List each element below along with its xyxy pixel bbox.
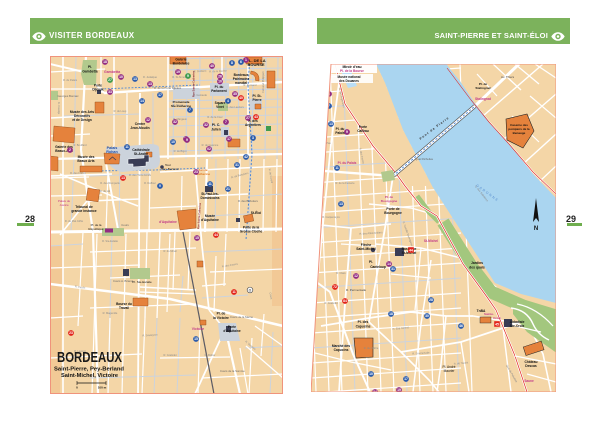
svg-text:Pl. Ste-Eulalie: Pl. Ste-Eulalie: [132, 280, 152, 284]
svg-text:Pl. C.: Pl. C.: [212, 123, 220, 127]
svg-text:26: 26: [218, 75, 222, 79]
svg-text:Julien: Julien: [211, 127, 221, 131]
svg-text:Ste-Croix: Ste-Croix: [510, 324, 525, 328]
svg-text:Pl. de: Pl. de: [217, 312, 226, 316]
svg-text:46: 46: [459, 324, 463, 328]
svg-text:Fernand Philippart: Fernand Philippart: [261, 71, 265, 92]
svg-text:R. des Trois-Conils: R. des Trois-Conils: [129, 173, 152, 177]
svg-text:BOURSE: BOURSE: [247, 62, 264, 67]
svg-text:Capucins: Capucins: [356, 324, 371, 328]
svg-text:17: 17: [227, 137, 231, 141]
svg-text:Bordelaise: Bordelaise: [173, 62, 190, 66]
svg-text:14: 14: [387, 262, 391, 266]
svg-text:Saint-Pierre, Pey-Berland: Saint-Pierre, Pey-Berland: [54, 367, 124, 373]
svg-text:14: 14: [140, 99, 144, 103]
svg-text:18: 18: [103, 60, 107, 64]
svg-text:2: 2: [69, 148, 71, 152]
svg-text:Pl. des: Pl. des: [358, 320, 369, 324]
svg-text:Descas: Descas: [525, 364, 537, 368]
svg-text:Gambetta: Gambetta: [82, 69, 97, 73]
svg-text:4: 4: [227, 99, 229, 103]
svg-text:Canteloup: Canteloup: [370, 265, 386, 269]
svg-text:St-Michel: St-Michel: [424, 239, 438, 243]
svg-text:19: 19: [176, 70, 180, 74]
svg-text:des quais: des quais: [469, 266, 485, 270]
svg-text:R. Ravez: R. Ravez: [173, 103, 184, 107]
svg-text:R. St-Rémi: R. St-Rémi: [194, 69, 207, 73]
svg-text:Bourgogne: Bourgogne: [384, 211, 402, 215]
svg-text:R. de Bigot: R. de Bigot: [174, 149, 187, 153]
svg-text:R. du Mirail: R. du Mirail: [163, 249, 177, 253]
svg-text:Jardins: Jardins: [471, 261, 483, 265]
svg-text:Stalingrad: Stalingrad: [475, 86, 490, 90]
svg-text:grande instance: grande instance: [71, 209, 96, 213]
svg-text:O: O: [249, 288, 252, 292]
svg-text:8: 8: [231, 61, 233, 65]
svg-text:18: 18: [389, 312, 393, 316]
svg-text:St-Éloi: St-Éloi: [251, 210, 262, 215]
svg-text:Croix: Croix: [493, 316, 501, 320]
svg-text:N: N: [534, 226, 538, 232]
svg-text:10: 10: [218, 80, 222, 84]
svg-text:44: 44: [409, 248, 413, 252]
svg-text:32: 32: [173, 120, 177, 124]
svg-text:15: 15: [194, 337, 198, 341]
svg-text:Pl. de la Bourse: Pl. de la Bourse: [340, 69, 364, 73]
svg-text:19: 19: [397, 388, 401, 392]
svg-text:9: 9: [187, 74, 189, 78]
svg-text:Cours de la Somme: Cours de la Somme: [220, 369, 245, 373]
svg-text:12: 12: [146, 118, 150, 122]
svg-text:17: 17: [158, 93, 162, 97]
svg-text:30: 30: [425, 314, 429, 318]
svg-text:Victoire: Victoire: [192, 327, 204, 331]
svg-text:35: 35: [233, 92, 237, 96]
svg-text:Argentiers: Argentiers: [245, 123, 261, 127]
svg-text:7: 7: [189, 108, 191, 112]
svg-text:27: 27: [108, 78, 112, 82]
svg-text:84: 84: [343, 299, 347, 303]
svg-text:7: 7: [225, 120, 227, 124]
svg-text:33: 33: [108, 90, 112, 94]
svg-text:Saint-Michel, Victoire: Saint-Michel, Victoire: [61, 373, 119, 379]
svg-text:42: 42: [244, 155, 248, 159]
svg-text:Av. Thiers: Av. Thiers: [501, 75, 515, 79]
svg-text:R. du Palais: R. du Palais: [63, 78, 78, 82]
svg-text:Grosse Cloche: Grosse Cloche: [240, 230, 263, 234]
svg-text:R. Carpenteyre: R. Carpenteyre: [322, 215, 340, 219]
svg-text:40: 40: [210, 64, 214, 68]
svg-text:Cours: Cours: [121, 223, 129, 227]
svg-text:Capucins: Capucins: [334, 348, 349, 352]
svg-text:13: 13: [148, 82, 152, 86]
svg-text:10: 10: [171, 140, 175, 144]
svg-text:13: 13: [339, 202, 343, 206]
svg-text:Rohan: Rohan: [106, 150, 118, 154]
svg-text:R. Kléber: R. Kléber: [205, 353, 216, 357]
svg-text:R. Ste-Eulalie: R. Ste-Eulalie: [102, 239, 118, 243]
svg-text:1: 1: [245, 58, 247, 62]
svg-text:d'Aquitaine: d'Aquitaine: [201, 218, 219, 222]
svg-text:R. Permentade: R. Permentade: [346, 288, 367, 292]
svg-text:R. du Hâ: R. du Hâ: [100, 189, 111, 193]
svg-text:R. de la Cour: R. de la Cour: [207, 115, 222, 119]
svg-text:R. Duffour: R. Duffour: [144, 181, 156, 185]
svg-text:Pl.: Pl.: [369, 260, 373, 264]
svg-text:Dominicains: Dominicains: [201, 196, 220, 200]
svg-text:11: 11: [208, 182, 212, 186]
svg-text:10: 10: [369, 372, 373, 376]
svg-text:la Victoire: la Victoire: [213, 316, 229, 320]
svg-text:R. du Pas: R. du Pas: [319, 141, 331, 145]
svg-text:Cours de la Marne: Cours de la Marne: [230, 315, 253, 319]
svg-text:28: 28: [429, 298, 433, 302]
svg-text:St-André: St-André: [134, 152, 148, 156]
svg-text:des Douanes: des Douanes: [339, 79, 359, 83]
svg-text:12: 12: [354, 274, 358, 278]
svg-text:Beaux Arts: Beaux Arts: [77, 159, 94, 163]
svg-text:13: 13: [133, 77, 137, 81]
svg-text:Pierre: Pierre: [252, 98, 261, 102]
svg-text:15: 15: [195, 236, 199, 240]
svg-text:R. Gratiolet: R. Gratiolet: [324, 301, 337, 305]
svg-text:R. Magendie: R. Magendie: [103, 311, 118, 315]
svg-text:d'Aquitaine: d'Aquitaine: [159, 220, 177, 224]
svg-text:R. des Remparts: R. des Remparts: [100, 181, 120, 185]
svg-text:Saune: Saune: [524, 379, 534, 383]
svg-text:Pl.: Pl.: [88, 65, 92, 69]
svg-text:Cailhau: Cailhau: [357, 129, 369, 133]
svg-text:R. des Lauriers: R. des Lauriers: [226, 105, 244, 109]
svg-text:44: 44: [214, 233, 218, 237]
svg-text:31: 31: [235, 163, 239, 167]
svg-text:Saint-Michel: Saint-Michel: [356, 247, 376, 251]
svg-text:72: 72: [333, 285, 337, 289]
svg-text:13: 13: [121, 176, 125, 180]
svg-text:Miroir d'eau: Miroir d'eau: [342, 65, 361, 69]
svg-text:R. de la Fusterie: R. de la Fusterie: [335, 181, 355, 185]
svg-text:R. des Bahutiers: R. des Bahutiers: [238, 199, 259, 203]
svg-text:d'Aquitaine: d'Aquitaine: [223, 329, 240, 333]
svg-text:R. du Cloître: R. du Cloître: [364, 346, 379, 350]
svg-text:Benauge: Benauge: [513, 131, 526, 135]
svg-text:23: 23: [194, 170, 198, 174]
svg-text:Pey Berland: Pey Berland: [162, 167, 179, 171]
svg-text:Vinet: Vinet: [216, 105, 225, 109]
svg-text:Dijeaux: Dijeaux: [92, 88, 104, 92]
svg-text:Justice: Justice: [59, 203, 69, 207]
svg-text:Gambetta: Gambetta: [104, 70, 120, 74]
svg-text:27: 27: [246, 116, 250, 120]
svg-text:République: République: [88, 227, 104, 231]
svg-text:R. Bouffard: R. Bouffard: [73, 143, 87, 147]
svg-text:Quai Richelieu: Quai Richelieu: [415, 157, 434, 161]
svg-text:32: 32: [204, 123, 208, 127]
svg-text:9: 9: [346, 130, 348, 134]
svg-text:R. Gratiolet: R. Gratiolet: [163, 353, 176, 357]
svg-text:45: 45: [495, 322, 499, 326]
svg-text:et de Design: et de Design: [72, 118, 92, 122]
svg-text:R. du Mal Joffre: R. du Mal Joffre: [65, 219, 84, 223]
svg-text:Maurier: Maurier: [444, 369, 456, 373]
svg-text:11: 11: [125, 145, 129, 149]
svg-text:9: 9: [186, 138, 188, 142]
svg-text:10: 10: [119, 75, 123, 79]
svg-text:Bourgogne: Bourgogne: [381, 199, 398, 203]
svg-text:Jean-Moulin: Jean-Moulin: [130, 126, 149, 130]
svg-text:Stalingrad: Stalingrad: [475, 97, 491, 101]
svg-text:43: 43: [254, 115, 258, 119]
svg-text:02: 02: [207, 147, 211, 151]
svg-text:R. de la Porte Dijeaux: R. de la Porte Dijeaux: [154, 86, 182, 90]
svg-text:R. Clare: R. Clare: [336, 271, 346, 275]
svg-text:100 m: 100 m: [98, 386, 107, 390]
svg-text:Cours A. Briand: Cours A. Briand: [113, 279, 133, 283]
svg-text:Parlament: Parlament: [211, 89, 227, 93]
svg-text:R. Judaïque: R. Judaïque: [143, 75, 158, 79]
svg-text:Travail: Travail: [119, 306, 129, 310]
svg-text:R. des Frères: R. des Frères: [70, 171, 86, 175]
svg-text:Georges Bonnac: Georges Bonnac: [58, 94, 80, 98]
svg-text:Palais: Palais: [335, 131, 344, 135]
svg-text:21: 21: [226, 187, 230, 191]
svg-text:13: 13: [329, 122, 333, 126]
svg-text:31: 31: [391, 267, 395, 271]
svg-text:R. du Loup: R. du Loup: [114, 109, 127, 113]
svg-text:6: 6: [240, 60, 242, 64]
svg-text:R. Guiraude: R. Guiraude: [193, 93, 208, 97]
svg-text:3: 3: [252, 136, 254, 140]
svg-text:11: 11: [335, 166, 339, 170]
svg-text:R. Castéja: R. Castéja: [57, 102, 61, 115]
svg-text:BORDEAUX: BORDEAUX: [57, 349, 122, 366]
svg-text:11: 11: [232, 290, 236, 294]
svg-text:23: 23: [69, 331, 73, 335]
svg-text:40: 40: [239, 96, 243, 100]
svg-text:Pl. du Palais: Pl. du Palais: [338, 161, 357, 165]
svg-text:17: 17: [404, 377, 408, 381]
svg-text:R. Fernand: R. Fernand: [244, 83, 258, 87]
svg-text:Palais: Palais: [107, 146, 118, 150]
